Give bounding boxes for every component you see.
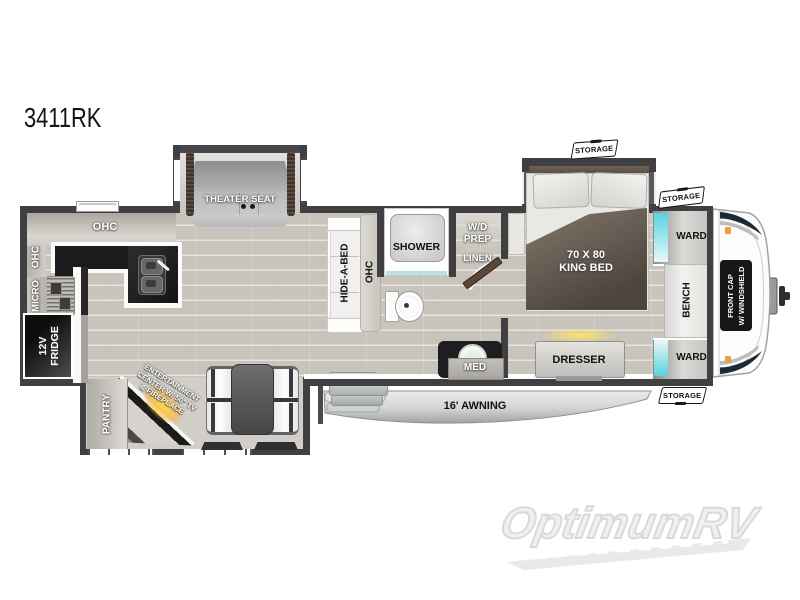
svg-text:OptimumRV: OptimumRV [497,499,763,548]
